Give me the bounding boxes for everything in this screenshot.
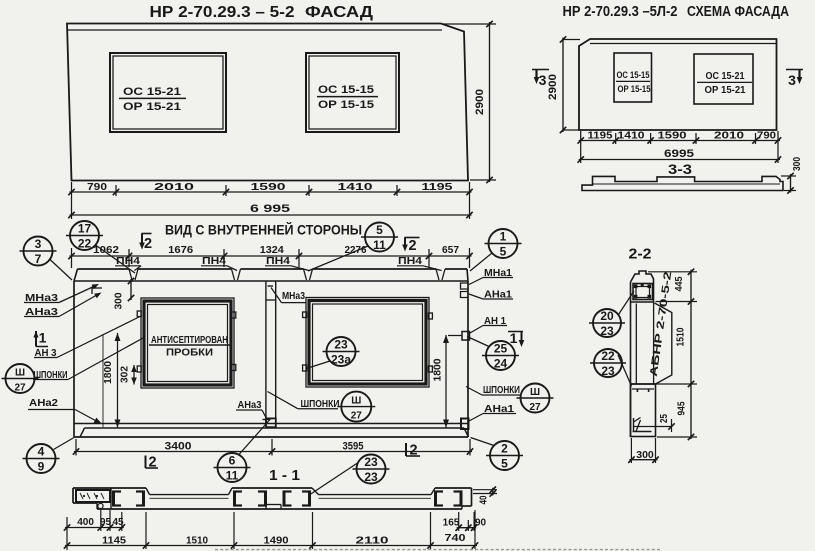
svg-text:1324: 1324 xyxy=(260,244,284,256)
svg-text:СХЕМА ФАСАДА: СХЕМА ФАСАДА xyxy=(687,4,789,20)
svg-text:3: 3 xyxy=(788,72,796,88)
svg-text:7: 7 xyxy=(35,252,42,266)
svg-text:1800: 1800 xyxy=(102,361,114,384)
svg-text:17: 17 xyxy=(78,221,92,235)
svg-text:1: 1 xyxy=(510,330,518,346)
svg-text:ОР 15-15: ОР 15-15 xyxy=(618,84,651,94)
svg-text:Ш: Ш xyxy=(530,387,540,398)
svg-text:4: 4 xyxy=(38,444,45,458)
svg-text:11: 11 xyxy=(226,468,239,482)
svg-text:6995: 6995 xyxy=(664,148,694,160)
svg-text:302: 302 xyxy=(120,366,131,383)
svg-text:20: 20 xyxy=(600,309,614,323)
svg-text:6 995: 6 995 xyxy=(250,203,290,215)
svg-text:5: 5 xyxy=(500,244,507,258)
svg-text:25: 25 xyxy=(659,414,670,423)
svg-text:27: 27 xyxy=(351,410,363,421)
svg-text:657: 657 xyxy=(442,244,459,256)
svg-text:Ш: Ш xyxy=(15,367,25,378)
svg-text:ОС 15-15: ОС 15-15 xyxy=(318,84,374,96)
svg-text:24: 24 xyxy=(494,356,508,370)
svg-text:27: 27 xyxy=(14,382,26,393)
svg-text:23: 23 xyxy=(364,470,378,484)
svg-text:ОР 15-21: ОР 15-21 xyxy=(123,101,181,113)
svg-text:2: 2 xyxy=(148,455,156,471)
svg-text:АНа3: АНа3 xyxy=(238,400,262,411)
svg-text:2010: 2010 xyxy=(154,181,194,193)
svg-text:2: 2 xyxy=(144,236,152,252)
svg-text:ШПОНКИ: ШПОНКИ xyxy=(483,385,520,396)
svg-text:23: 23 xyxy=(601,364,615,378)
svg-text:9: 9 xyxy=(38,459,45,473)
svg-text:1195: 1195 xyxy=(588,130,613,142)
svg-text:23: 23 xyxy=(600,324,614,338)
svg-text:27: 27 xyxy=(529,402,541,413)
svg-text:2: 2 xyxy=(501,441,508,455)
svg-text:2110: 2110 xyxy=(356,535,389,547)
svg-text:22: 22 xyxy=(601,349,615,363)
svg-text:5: 5 xyxy=(376,223,383,237)
svg-text:НР 2-70.29.3 –5Л-2: НР 2-70.29.3 –5Л-2 xyxy=(563,4,678,20)
svg-text:1510: 1510 xyxy=(675,327,687,346)
svg-text:1510: 1510 xyxy=(186,535,208,547)
svg-text:300: 300 xyxy=(114,292,125,309)
svg-text:445: 445 xyxy=(673,276,685,291)
svg-text:300: 300 xyxy=(792,157,803,171)
svg-text:945: 945 xyxy=(676,401,688,415)
svg-text:23а: 23а xyxy=(331,352,351,366)
svg-text:25: 25 xyxy=(494,341,508,355)
svg-text:3: 3 xyxy=(35,237,42,251)
svg-text:2: 2 xyxy=(408,238,416,254)
svg-text:1590: 1590 xyxy=(658,130,687,142)
svg-text:1062: 1062 xyxy=(93,244,119,256)
svg-text:300: 300 xyxy=(636,449,654,461)
svg-text:11: 11 xyxy=(373,238,386,252)
svg-text:ОР 15-21: ОР 15-21 xyxy=(705,85,746,96)
svg-text:400: 400 xyxy=(77,517,94,528)
svg-text:1490: 1490 xyxy=(264,535,289,547)
svg-text:2276: 2276 xyxy=(345,244,367,256)
svg-text:1145: 1145 xyxy=(102,535,126,547)
svg-text:3595: 3595 xyxy=(343,441,364,453)
svg-text:ПРОБКИ: ПРОБКИ xyxy=(166,348,213,359)
svg-text:ОС 15-21: ОС 15-21 xyxy=(706,71,745,82)
svg-text:22: 22 xyxy=(78,236,92,250)
svg-text:740: 740 xyxy=(445,532,466,544)
svg-text:МНа3: МНа3 xyxy=(282,291,305,302)
svg-text:1676: 1676 xyxy=(168,244,193,256)
svg-text:23: 23 xyxy=(334,337,348,351)
svg-text:Ш: Ш xyxy=(351,395,361,406)
svg-text:5: 5 xyxy=(501,456,508,470)
svg-text:2010: 2010 xyxy=(714,130,744,142)
svg-text:790: 790 xyxy=(757,130,776,142)
svg-text:165: 165 xyxy=(443,518,460,529)
svg-text:1: 1 xyxy=(39,330,47,346)
svg-text:1: 1 xyxy=(500,229,507,243)
svg-text:2: 2 xyxy=(409,443,417,459)
svg-text:1800: 1800 xyxy=(432,358,444,381)
svg-text:НР 2-70.29.3 – 5-2: НР 2-70.29.3 – 5-2 xyxy=(150,4,295,21)
svg-text:1410: 1410 xyxy=(618,130,645,142)
svg-text:ФАСАД: ФАСАД xyxy=(305,4,373,21)
svg-text:АНа2: АНа2 xyxy=(29,398,58,409)
svg-text:2900: 2900 xyxy=(547,74,559,100)
svg-text:45: 45 xyxy=(112,517,124,528)
svg-text:ОР 15-15: ОР 15-15 xyxy=(318,99,374,111)
svg-text:6: 6 xyxy=(229,453,236,467)
svg-text:3-3: 3-3 xyxy=(668,161,692,177)
svg-text:1195: 1195 xyxy=(422,181,453,193)
svg-text:ОС 15-21: ОС 15-21 xyxy=(123,86,181,98)
svg-text:1410: 1410 xyxy=(338,181,373,193)
svg-text:23: 23 xyxy=(364,455,378,469)
svg-text:3400: 3400 xyxy=(165,441,192,453)
svg-text:ОС 15-15: ОС 15-15 xyxy=(617,70,650,80)
svg-text:1590: 1590 xyxy=(251,181,286,193)
svg-text:3: 3 xyxy=(539,72,547,88)
svg-text:95: 95 xyxy=(100,517,112,528)
svg-text:40: 40 xyxy=(479,495,490,504)
svg-text:2900: 2900 xyxy=(474,89,486,115)
svg-text:790: 790 xyxy=(87,181,107,193)
svg-text:1 - 1: 1 - 1 xyxy=(269,467,300,484)
svg-text:2-2: 2-2 xyxy=(629,247,652,263)
svg-text:90: 90 xyxy=(475,518,487,529)
svg-text:ВИД С ВНУТРЕННЕЙ СТОРОНЫ: ВИД С ВНУТРЕННЕЙ СТОРОНЫ xyxy=(165,223,362,238)
